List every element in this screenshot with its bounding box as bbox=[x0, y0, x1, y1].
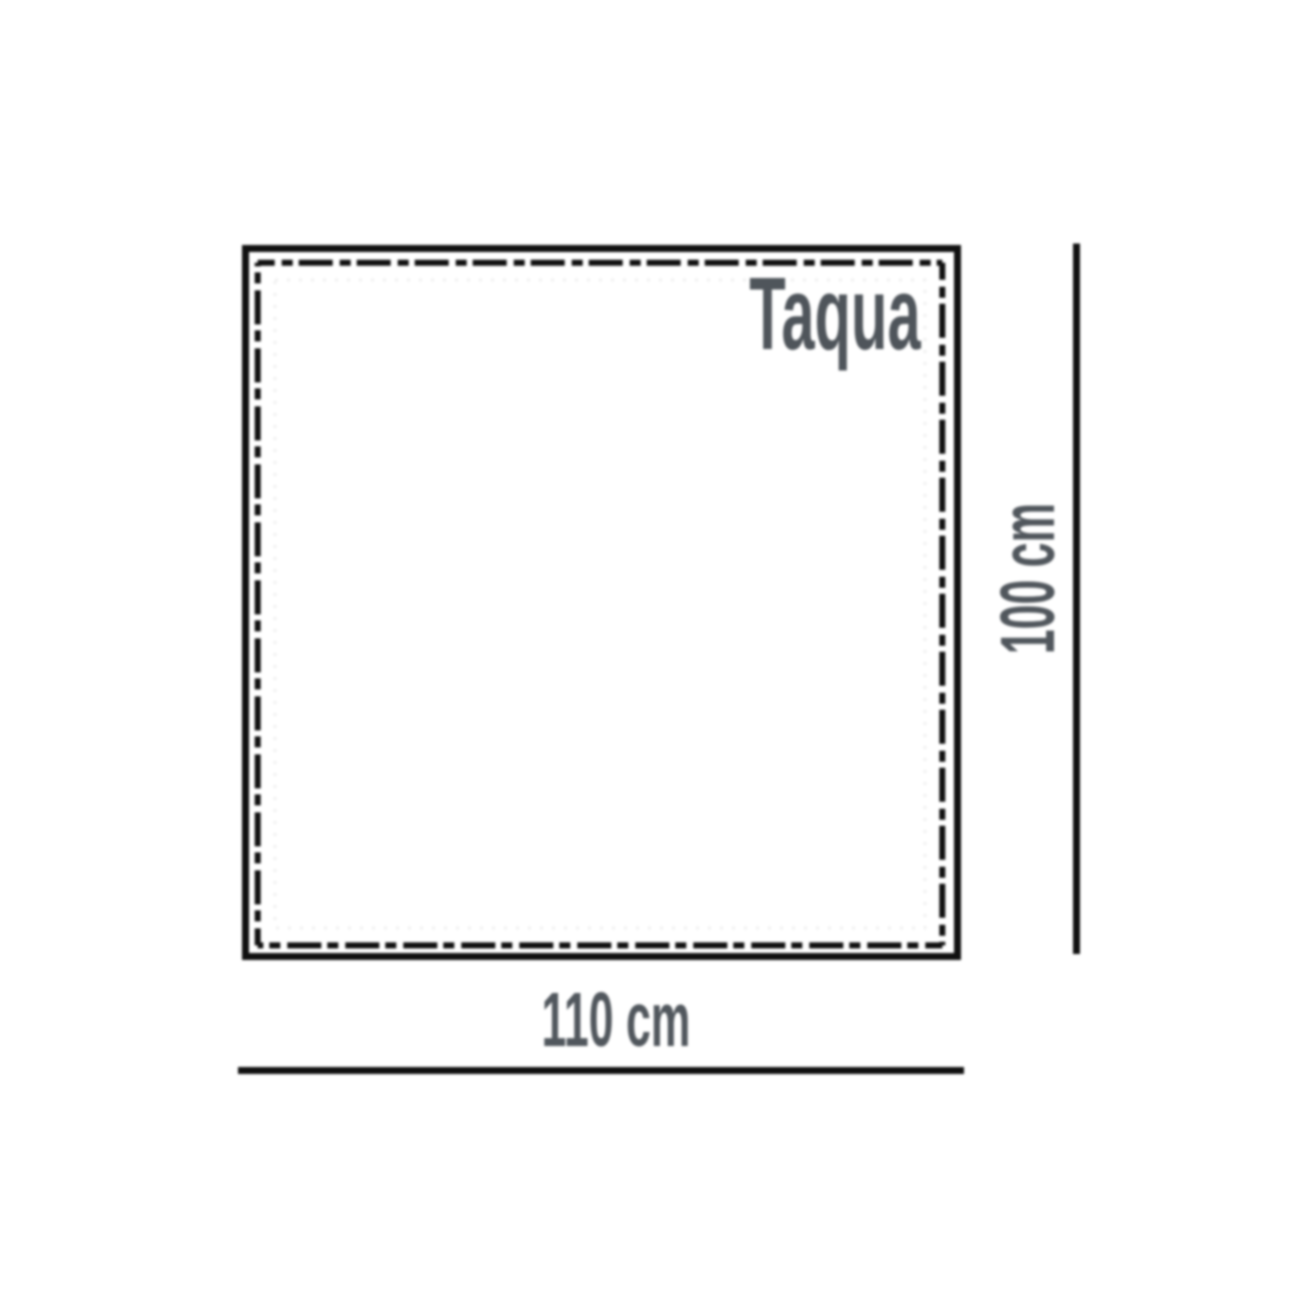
svg-text:110 cm: 110 cm bbox=[541, 977, 690, 1063]
svg-text:100 cm: 100 cm bbox=[985, 503, 1071, 654]
svg-text:Taqua: Taqua bbox=[749, 256, 921, 371]
